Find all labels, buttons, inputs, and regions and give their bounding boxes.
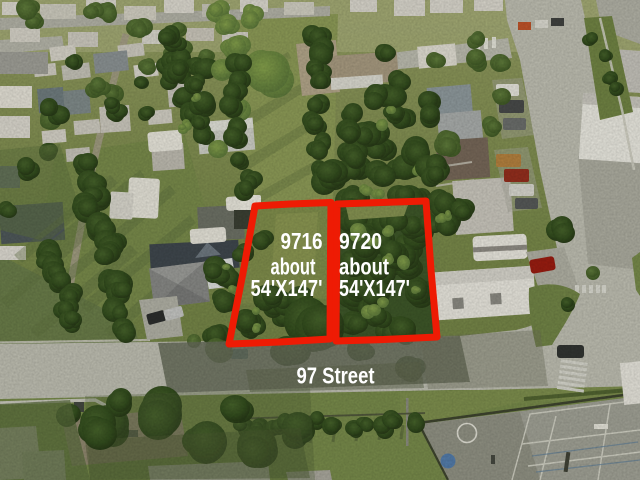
svg-text:9716: 9716 (281, 228, 323, 254)
svg-text:54'X147': 54'X147' (251, 275, 323, 301)
svg-text:54'X147': 54'X147' (339, 275, 410, 301)
svg-text:97 Street: 97 Street (297, 363, 375, 389)
svg-text:9720: 9720 (339, 228, 382, 254)
